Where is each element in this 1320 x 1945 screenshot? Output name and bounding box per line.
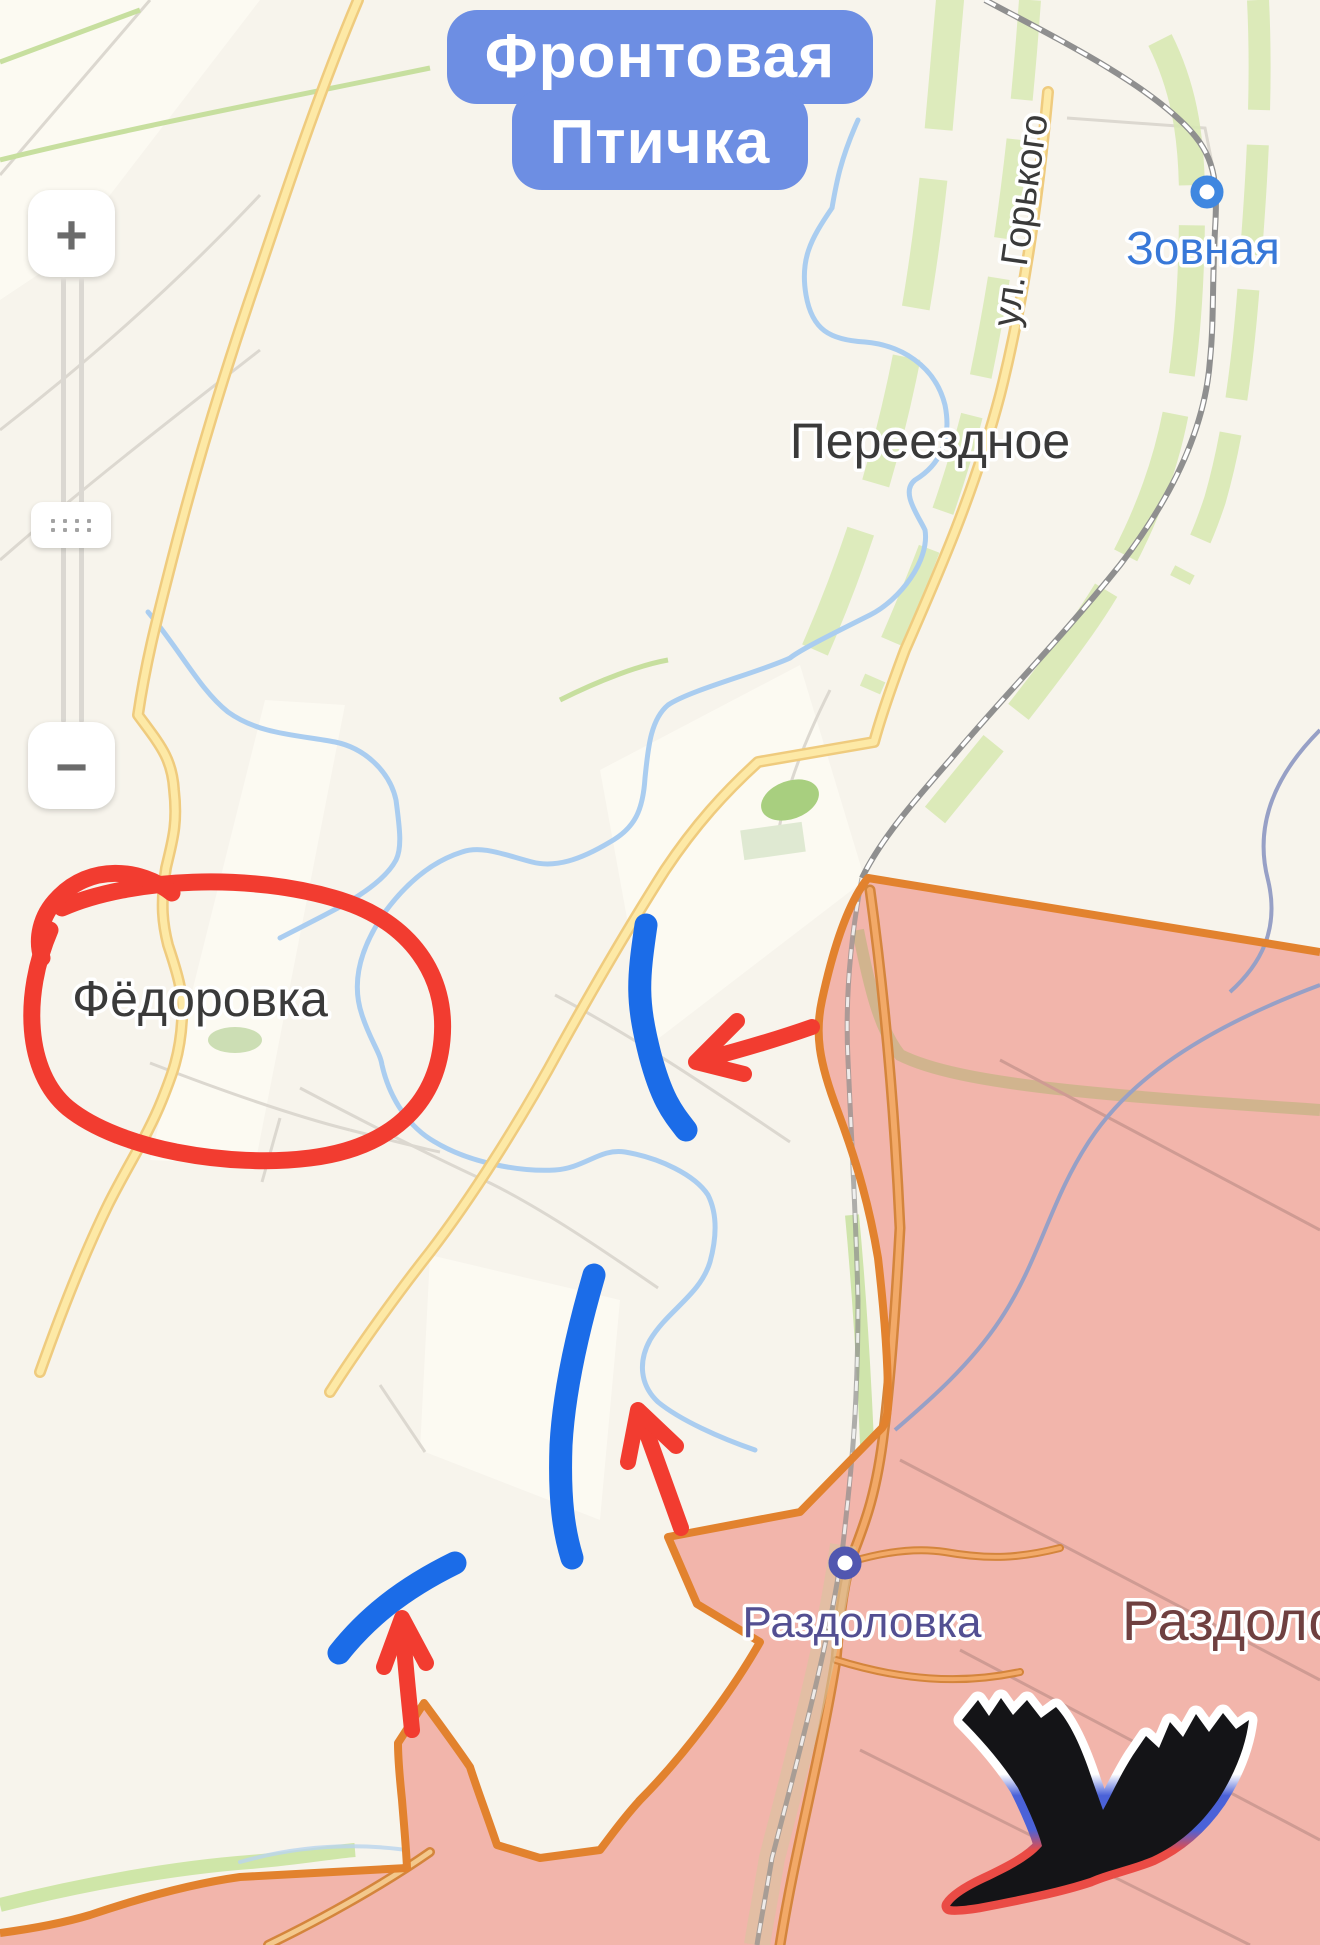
arrow-south-shaft [404,1645,412,1730]
place-label-razdolovka: Раздоловка [743,1598,982,1647]
zoom-track-rail-right [79,277,84,723]
zoom-slider-handle[interactable] [31,502,111,548]
zoom-in-button[interactable]: + [28,190,115,277]
zoom-track-rail-left [61,277,66,723]
place-label-zovnaya: Зовная [1126,222,1280,274]
place-label-fedorovka: Фёдоровка [72,971,328,1027]
map-screenshot: ул. Горького Переездное Фёдоровка Зовная… [0,0,1320,1945]
zoom-slider-track[interactable] [28,277,115,723]
title-line-2: Птичка [512,90,809,190]
marker-razdolovka[interactable] [833,1551,857,1575]
place-label-pereezdnoe: Переездное [790,413,1070,469]
title-banner: Фронтовая Птичка [0,10,1320,190]
place-label-razdolovka-large: Раздоловка [1122,1589,1320,1652]
zoom-out-button[interactable]: − [28,722,115,809]
drag-dots-icon [51,519,91,532]
map-canvas[interactable]: ул. Горького Переездное Фёдоровка Зовная… [0,0,1320,1945]
